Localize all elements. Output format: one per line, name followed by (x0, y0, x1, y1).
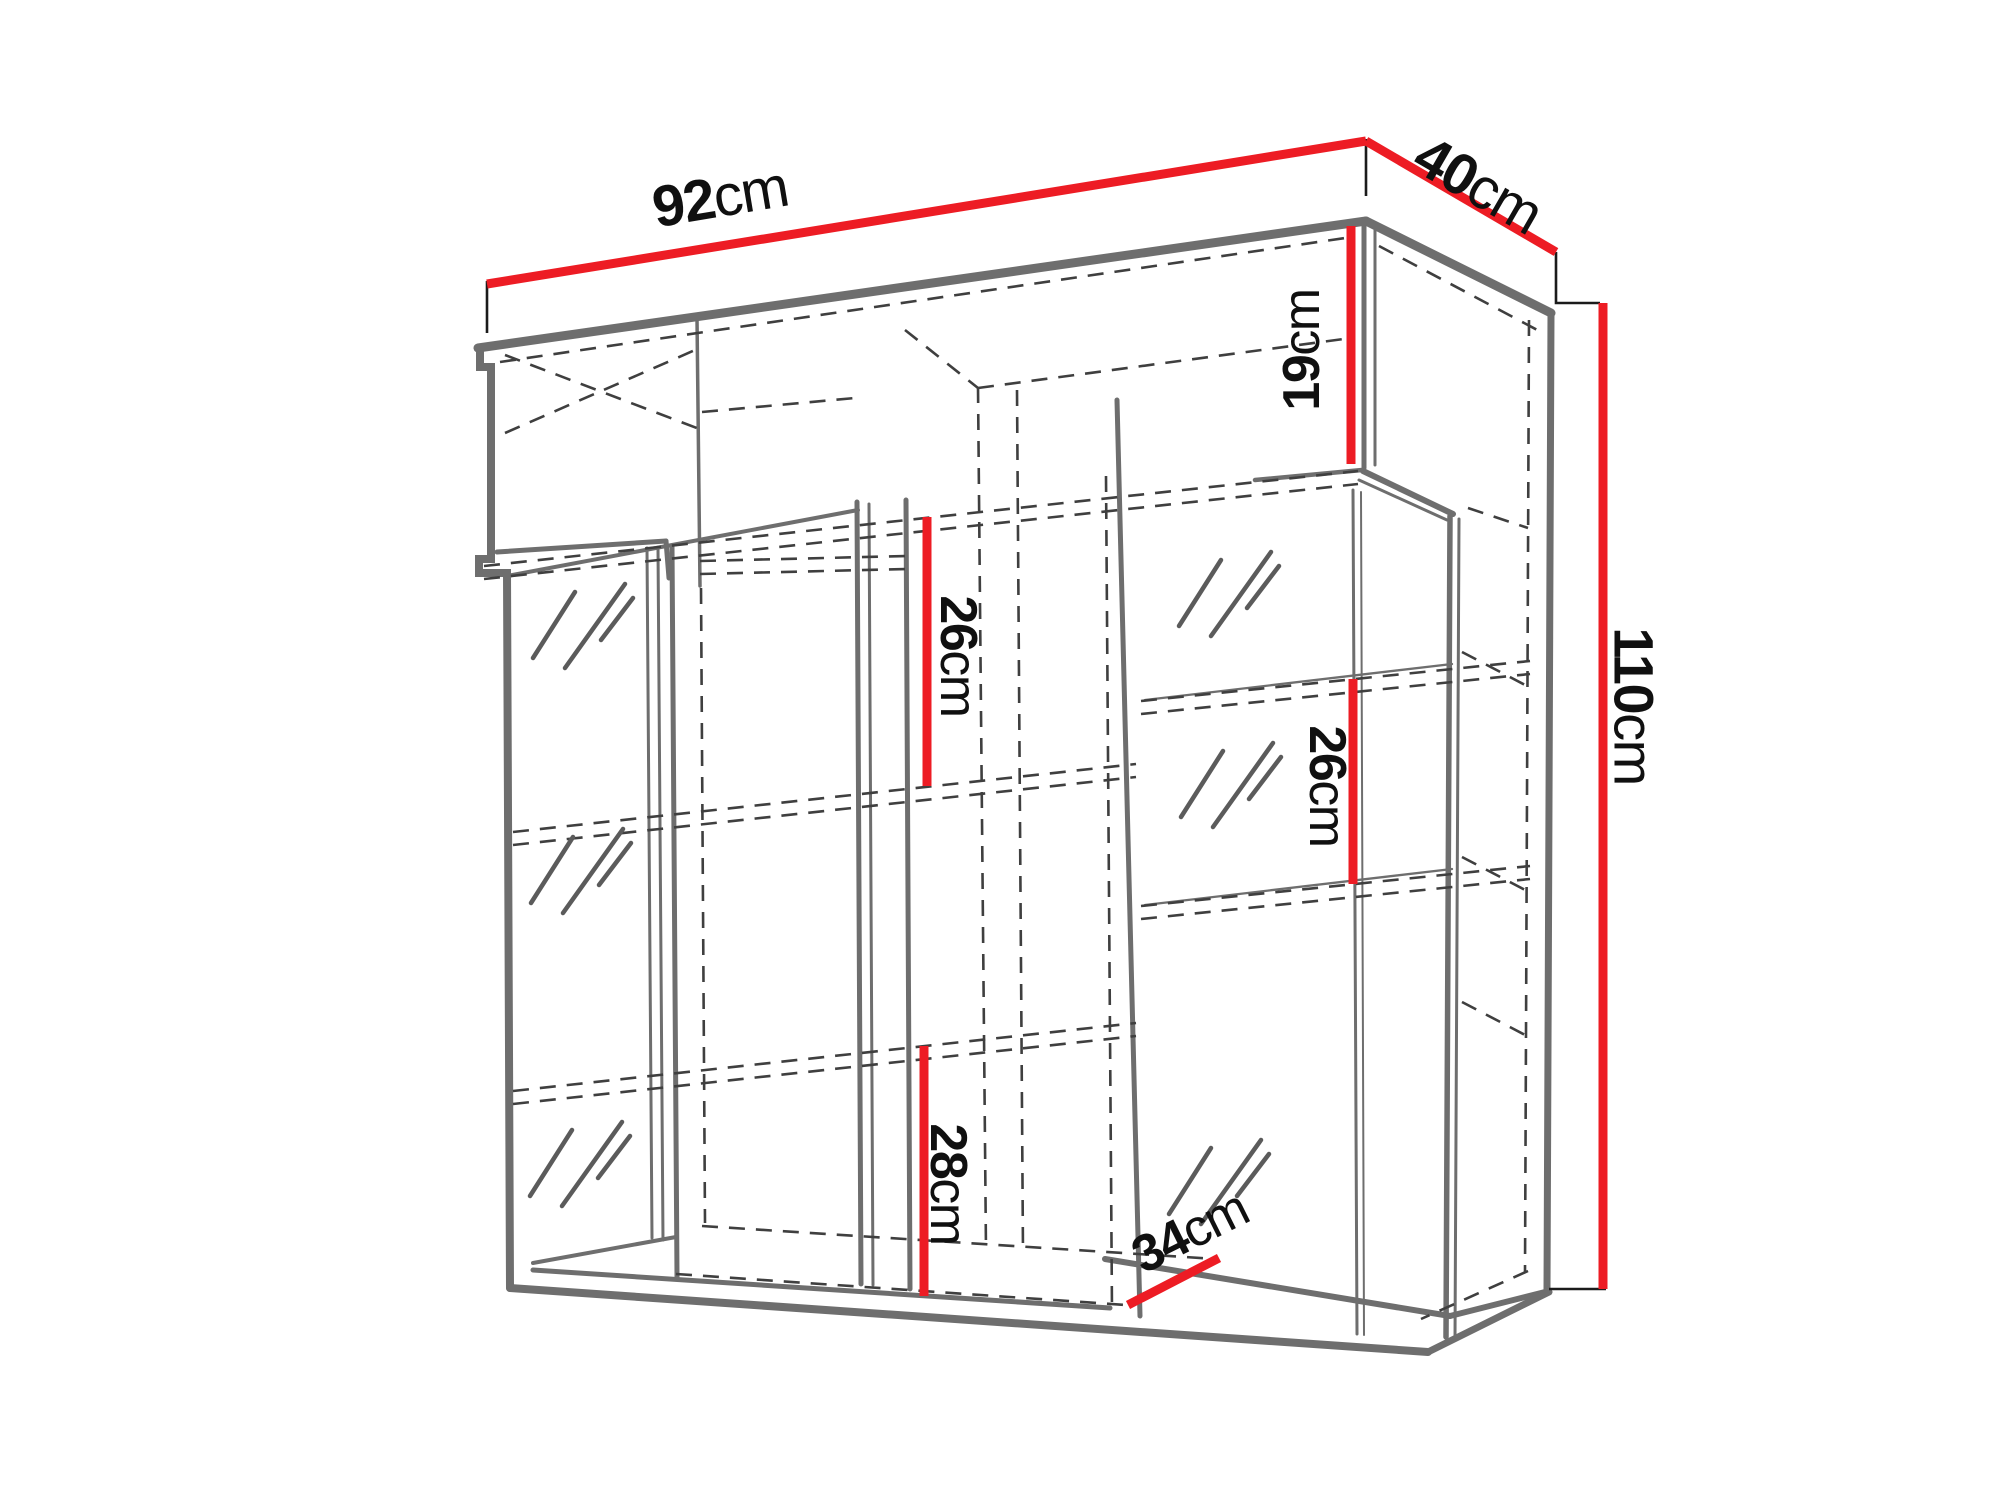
dimension-lines (487, 141, 1603, 1305)
interior-dashed-lines (484, 237, 1543, 1319)
height-unit: cm (1603, 713, 1666, 785)
height-value: 110 (1603, 627, 1666, 713)
width-unit: cm (708, 154, 792, 230)
height-dimension-label: 110cm (1602, 627, 1667, 785)
top-compartment-value: 19 (1273, 356, 1331, 411)
shelf-gap-left-dimension-label: 26cm (928, 595, 988, 716)
width-dimension-line (487, 141, 1366, 284)
shelf-gap-right-unit: cm (1298, 780, 1356, 846)
diagram-stage: 92cm 40cm 110cm 19cm 26cm 26cm 28cm 34cm (0, 0, 2000, 1500)
bottom-compartment-value: 28 (919, 1123, 977, 1178)
cabinet-drawing (0, 0, 2000, 1500)
dimension-ticks (487, 139, 1606, 1289)
top-compartment-unit: cm (1273, 289, 1331, 355)
bottom-compartment-unit: cm (919, 1178, 977, 1244)
top-compartment-dimension-label: 19cm (1272, 289, 1332, 410)
shelf-gap-left-value: 26 (929, 595, 987, 650)
width-value: 92 (648, 166, 719, 240)
bottom-compartment-dimension-label: 28cm (918, 1123, 978, 1244)
shelf-gap-left-unit: cm (929, 650, 987, 716)
cabinet-outline (478, 221, 1551, 1352)
shelf-gap-right-value: 26 (1298, 725, 1356, 780)
shelf-gap-right-dimension-label: 26cm (1297, 725, 1357, 846)
